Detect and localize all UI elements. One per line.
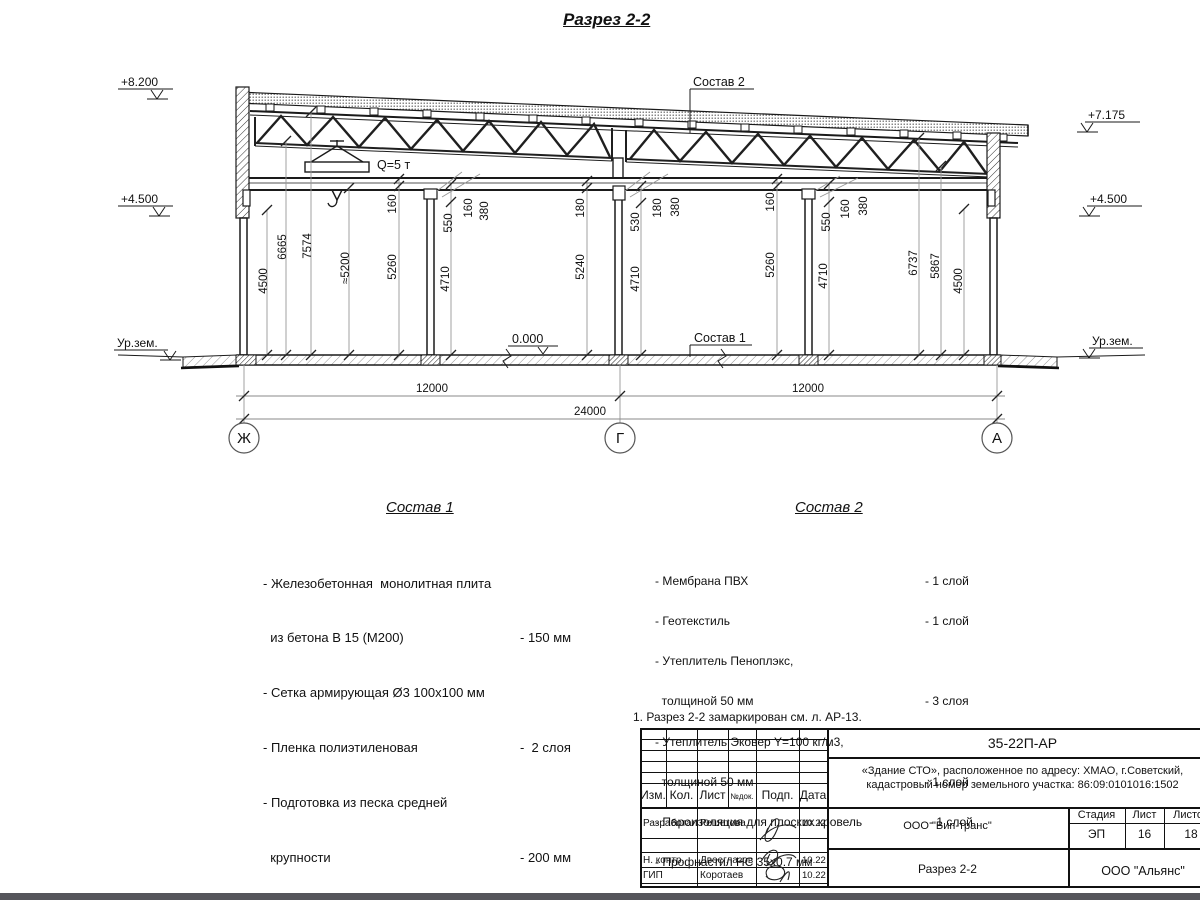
- list-item: толщиной 50 мм: [655, 694, 754, 708]
- dim-label: 6665: [277, 234, 289, 260]
- tb-col-list: Лист: [697, 788, 728, 802]
- note: 1. Разрез 2-2 замаркирован см. л. АР-13.: [633, 710, 862, 724]
- dim-label: 160: [463, 198, 475, 217]
- tb-sheets-value: 18: [1164, 827, 1200, 841]
- ground-level-label: Ур.зем.: [1092, 334, 1133, 348]
- elevation-label: +8.200: [121, 75, 158, 89]
- dim-label: 5867: [930, 253, 942, 279]
- sostav2-heading: Состав 2: [795, 499, 863, 516]
- tb-date: 10.22: [802, 870, 826, 881]
- tb-col-data: Дата: [799, 788, 827, 802]
- axis-label: А: [992, 430, 1002, 447]
- list-value: - 150 мм: [520, 629, 571, 647]
- drawing-sheet: Разрез 2-2: [0, 0, 1200, 900]
- dim-label: 160: [840, 199, 852, 218]
- list-value: - 1 слой: [925, 575, 969, 588]
- tb-date: 10.22: [802, 855, 826, 866]
- dim-label: 4500: [258, 268, 270, 294]
- dim-label: 5260: [765, 252, 777, 278]
- tb-org-right: ООО "Альянс": [1068, 864, 1200, 878]
- window-bottom-edge: [0, 893, 1200, 900]
- ground-level-label: Ур.зем.: [117, 336, 158, 350]
- sostav1-list: - Железобетонная монолитная плита из бет…: [263, 538, 583, 900]
- dim-label: 5260: [387, 254, 399, 280]
- title-block: Изм. Кол. Лист №док. Подп. Дата Разработ…: [640, 728, 1200, 888]
- tb-role: Н. контр.: [643, 855, 684, 866]
- list-value: - 3 слоя: [925, 695, 969, 708]
- tb-sheets-label: Листов: [1164, 809, 1200, 821]
- list-value: - 2 слоя: [520, 739, 571, 757]
- tb-sheet-value: 16: [1125, 827, 1164, 841]
- dim-label: 160: [765, 192, 777, 211]
- list-item: - Пленка полиэтиленовая: [263, 740, 418, 755]
- list-item: - Утеплитель Пеноплэкс,: [655, 654, 793, 668]
- roof: [237, 92, 1028, 147]
- dim-label: 5240: [575, 254, 587, 280]
- tb-col-izm: Изм.: [640, 788, 666, 802]
- dim-label: 4710: [440, 266, 452, 292]
- tb-name: Коротаев: [700, 870, 743, 881]
- crane-capacity-label: Q=5 т: [377, 158, 410, 172]
- list-item: крупности: [263, 850, 331, 865]
- section-drawing: Q=5 т 4500 66: [0, 0, 1200, 480]
- vertical-dimension-labels: 4500 6665 7574 ≈5200 160 5260 550 4710 1…: [258, 192, 965, 293]
- tb-date: 10.22: [802, 818, 826, 829]
- dim-label: ≈5200: [340, 252, 352, 284]
- axis-bubbles: Ж Г А: [229, 423, 1012, 453]
- tb-object-line1: «Здание СТО», расположенное по адресу: Х…: [830, 765, 1200, 777]
- list-item: - Мембрана ПВХ: [655, 574, 748, 588]
- dim-label: 550: [821, 212, 833, 231]
- dim-label: 530: [630, 212, 642, 231]
- dim-span-right: 12000: [792, 383, 824, 395]
- dim-label: 180: [652, 198, 664, 217]
- list-item: - Сетка армирующая Ø3 100х100 мм: [263, 685, 485, 700]
- tb-role: ГИП: [643, 870, 663, 881]
- elevation-label: +7.175: [1088, 108, 1125, 122]
- dim-label: 4710: [630, 266, 642, 292]
- dim-label: 380: [858, 196, 870, 215]
- tb-stage-value: ЭП: [1068, 827, 1125, 841]
- signatures: [752, 808, 802, 886]
- list-item: из бетона В 15 (М200): [263, 630, 404, 645]
- tb-name: Решетова: [700, 818, 746, 829]
- axis-label: Ж: [237, 430, 251, 447]
- dim-total: 24000: [574, 406, 606, 418]
- list-item: - Геотекстиль: [655, 614, 730, 628]
- dim-label: 160: [387, 194, 399, 213]
- dim-label: 380: [479, 201, 491, 220]
- elevation-label: +4.500: [121, 192, 158, 206]
- tb-col-podp: Подп.: [756, 788, 799, 802]
- zero-level-label: 0.000: [512, 332, 543, 346]
- tb-object-line2: кадастровый номер земельного участка: 86…: [830, 779, 1200, 791]
- tb-doc-title: Разрез 2-2: [827, 862, 1068, 876]
- tb-doc-code: 35-22П-АР: [827, 735, 1200, 751]
- dim-label: 550: [443, 213, 455, 232]
- tb-sheet-label: Лист: [1125, 809, 1164, 821]
- dim-label: 7574: [302, 233, 314, 259]
- list-item: - Подготовка из песка средней: [263, 795, 447, 810]
- tb-stage-label: Стадия: [1068, 809, 1125, 821]
- list-value: - 200 мм: [520, 849, 571, 867]
- dim-label: 180: [575, 198, 587, 217]
- callout-sostav2: Состав 2: [693, 75, 745, 89]
- tb-name: Двоеглазов: [700, 855, 753, 866]
- dim-label: 6737: [908, 250, 920, 276]
- sostav1-heading: Состав 1: [386, 499, 454, 516]
- dim-label: 4710: [818, 263, 830, 289]
- list-item: - Железобетонная монолитная плита: [263, 576, 491, 591]
- tb-role: Разработал: [643, 818, 697, 829]
- axis-label: Г: [616, 430, 624, 447]
- dim-label: 4500: [953, 268, 965, 294]
- tb-col-kol: Кол.: [666, 788, 697, 802]
- dim-label: 380: [670, 197, 682, 216]
- callout-sostav1: Состав 1: [694, 331, 746, 345]
- columns: [240, 186, 997, 355]
- list-value: - 1 слой: [925, 615, 969, 628]
- tb-org-center: ООО "Вип-транс": [827, 820, 1068, 832]
- tb-col-ndoc: №док.: [728, 792, 756, 801]
- elevation-label: +4.500: [1090, 192, 1127, 206]
- dim-span-left: 12000: [416, 383, 448, 395]
